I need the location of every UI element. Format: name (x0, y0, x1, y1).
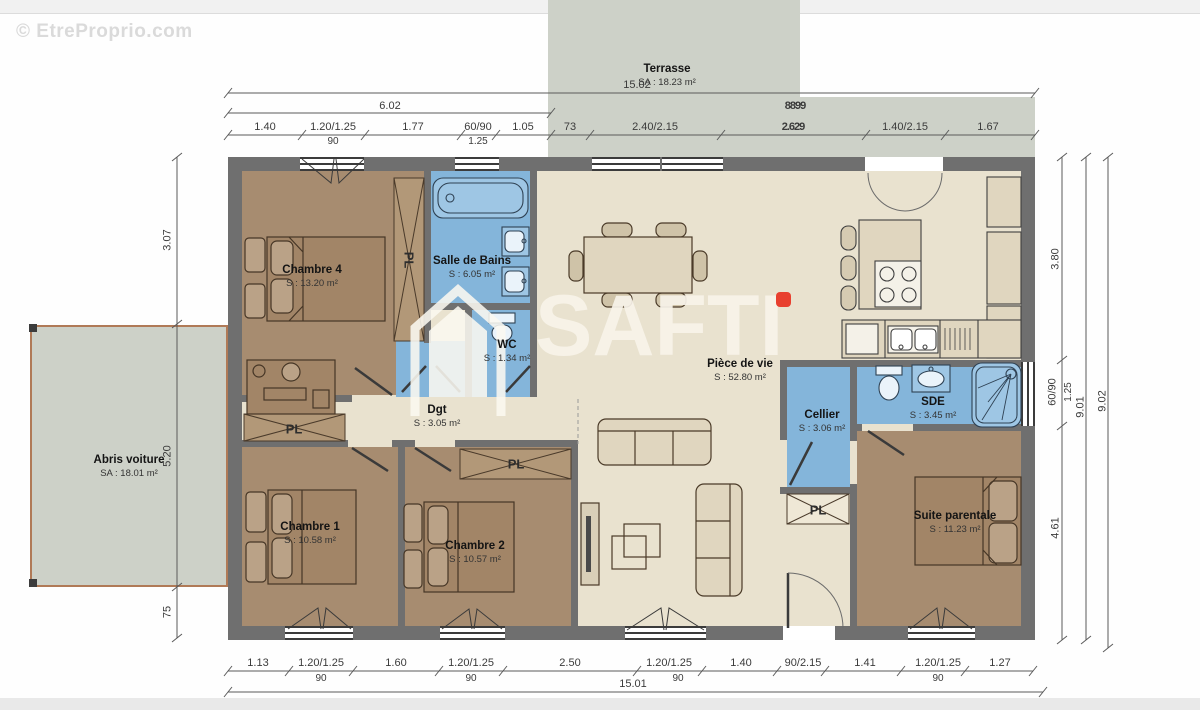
label-sdb: Salle de Bains S : 6.05 m² (433, 254, 511, 281)
window-chambre2 (440, 626, 505, 640)
wall-interior (780, 360, 1021, 367)
dim-label: 75 (163, 606, 174, 618)
carport-post (29, 324, 37, 332)
dim-label: 90 (672, 674, 683, 684)
dim-label: 1.40 (730, 658, 751, 669)
wall-interior (242, 440, 348, 447)
dim-label: 1.20/1.25 (915, 658, 961, 669)
dim-label: 1.25 (1064, 382, 1074, 401)
wall-interior (398, 447, 405, 626)
safti-red-dot (776, 292, 791, 307)
dim-label: 73 (564, 122, 576, 133)
french-door-sejour (625, 626, 706, 640)
closet-label: PL (810, 504, 827, 517)
wall-interior (455, 440, 578, 447)
dim-label: 1.13 (247, 658, 268, 669)
wall-interior (850, 367, 857, 424)
dim-label: 1.40 (254, 122, 275, 133)
dim-label: 1.20/1.25 (646, 658, 692, 669)
label-sejour: Pièce de vie S : 52.80 m² (707, 357, 773, 384)
dim-label: 90 (315, 674, 326, 684)
wall-interior (780, 487, 857, 494)
dim-label: 90/2.15 (785, 658, 822, 669)
label-sde: SDE S : 3.45 m² (910, 395, 956, 422)
dim-label: 3.80 (1051, 248, 1062, 269)
label-suite: Suite parentale S : 11.23 m² (914, 509, 996, 536)
dim-label: 15.01 (619, 679, 647, 690)
label-cellier: Cellier S : 3.06 m² (799, 408, 845, 435)
label-dgt: Dgt S : 3.05 m² (414, 403, 460, 430)
wall-interior (850, 484, 857, 626)
window-sejour-1 (592, 157, 660, 171)
window-sdb (455, 157, 499, 171)
window-chambre4 (300, 157, 364, 171)
dim-label: 1.60 (385, 658, 406, 669)
room-chambre2 (405, 447, 571, 626)
closet-label: PL (508, 458, 525, 471)
dim-label: 5.20 (163, 445, 174, 466)
dim-label: 90 (327, 137, 338, 147)
dim-label: 1.20/1.25 (448, 658, 494, 669)
carport-post (29, 579, 37, 587)
wall-interior (242, 395, 352, 402)
dim-label: 2.40/2.15 (632, 122, 678, 133)
wall-interior (571, 447, 578, 626)
wall-interior (431, 303, 530, 310)
wall-interior (392, 440, 415, 447)
door-opening-kitchen (865, 157, 943, 171)
dim-label: 9.02 (1098, 390, 1109, 411)
dim-label: 60/90 (1048, 378, 1059, 406)
floorplan-canvas: SAFTI © EtreProprio.com Terrasse SA : 18… (0, 0, 1200, 710)
wall-interior (780, 367, 787, 440)
dim-label: 90 (465, 674, 476, 684)
dim-label: 1.40/2.15 (882, 122, 928, 133)
dim-label: 1.20/1.25 (298, 658, 344, 669)
wall-interior (850, 424, 862, 431)
closet-label: PL (403, 252, 416, 269)
dim-label: 1.41 (854, 658, 875, 669)
dim-label: 8899 (785, 101, 805, 112)
room-salle-de-bains (431, 171, 530, 303)
window-sejour-2 (662, 157, 723, 171)
door-opening-entry (783, 626, 835, 640)
wall-interior (465, 310, 472, 397)
dim-label: 1.77 (402, 122, 423, 133)
dim-label: 3.07 (163, 229, 174, 250)
dim-label: 1.05 (512, 122, 533, 133)
dim-label: 1.67 (977, 122, 998, 133)
label-chambre2: Chambre 2 S : 10.57 m² (445, 539, 504, 566)
label-wc: WC S : 1.34 m² (484, 338, 530, 365)
label-chambre4: Chambre 4 S : 13.20 m² (282, 263, 341, 290)
dim-label: 90 (932, 674, 943, 684)
dim-label: 1.20/1.25 (310, 122, 356, 133)
closet-label: PL (286, 423, 303, 436)
window-suite (908, 626, 975, 640)
window-right-wall (1021, 362, 1035, 426)
dim-label: 1.25 (468, 137, 487, 147)
room-vestibule (396, 341, 465, 397)
label-chambre1: Chambre 1 S : 10.58 m² (280, 520, 339, 547)
dim-label: 1.27 (989, 658, 1010, 669)
dim-label: 2.50 (559, 658, 580, 669)
dim-label: 4.61 (1051, 517, 1062, 538)
dim-label: 2.629 (782, 122, 805, 133)
wall-left (228, 157, 242, 640)
etreproprio-watermark: © EtreProprio.com (16, 21, 193, 43)
label-abris: Abris voiture SA : 18.01 m² (94, 453, 165, 480)
wall-interior (424, 171, 431, 343)
dim-label: 15.02 (623, 80, 651, 91)
wall-interior (913, 424, 1021, 431)
dim-label: 9.01 (1076, 396, 1087, 417)
window-chambre1 (285, 626, 353, 640)
wall-interior (850, 431, 857, 441)
dim-label: 60/90 (464, 122, 492, 133)
bottom-strip (0, 698, 1200, 710)
dim-label: 6.02 (379, 101, 400, 112)
